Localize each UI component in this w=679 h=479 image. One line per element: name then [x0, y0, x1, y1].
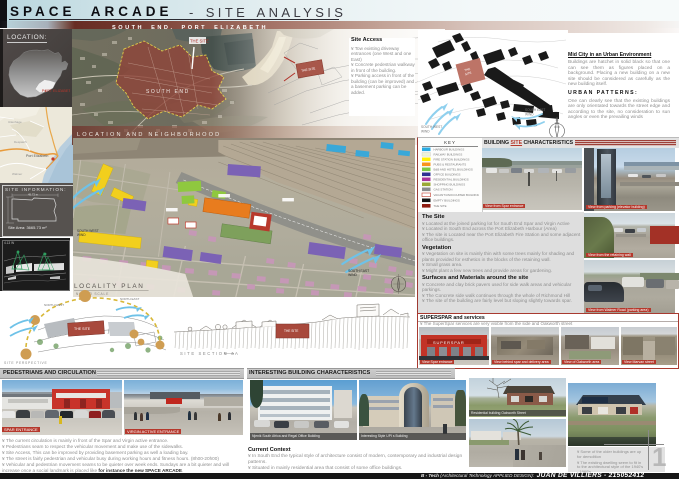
- svg-text:A: A: [235, 351, 238, 356]
- svg-text:WIND: WIND: [525, 113, 534, 117]
- svg-text:B&B AND HOTEL BUILDINGS: B&B AND HOTEL BUILDINGS: [434, 168, 473, 172]
- svg-text:THE SITE: THE SITE: [74, 327, 91, 331]
- svg-text:PUBS & RESTAURANTS: PUBS & RESTAURANTS: [434, 163, 467, 167]
- svg-text:RAILWAY BUILDINGS: RAILWAY BUILDINGS: [434, 153, 463, 157]
- svg-text:WIND: WIND: [348, 273, 357, 277]
- svg-text:SOUTH EAST: SOUTH EAST: [525, 108, 545, 112]
- svg-text:WIND: WIND: [421, 130, 430, 134]
- svg-text:SOUTH END: SOUTH END: [146, 89, 190, 95]
- svg-text:LOCALITY PLAN: LOCALITY PLAN: [74, 283, 145, 290]
- svg-text:SOUTH WEST: SOUTH WEST: [421, 125, 442, 129]
- svg-text:THE SITE: THE SITE: [284, 329, 298, 333]
- svg-text:Walmer: Walmer: [12, 172, 22, 176]
- svg-text:THE SITE: THE SITE: [190, 39, 209, 44]
- svg-text:OFFICE BUILDINGS: OFFICE BUILDINGS: [434, 173, 461, 177]
- svg-text:FIRE STATION BUILDINGS: FIRE STATION BUILDINGS: [434, 158, 470, 162]
- svg-text:THE SITE: THE SITE: [434, 204, 447, 208]
- svg-text:RESIDENTIAL BUILDINGS: RESIDENTIAL BUILDINGS: [434, 178, 469, 182]
- svg-text:WIND: WIND: [77, 233, 86, 237]
- svg-text:Port Elizabeth: Port Elizabeth: [26, 154, 48, 158]
- svg-text:PORT ELIZABETH: PORT ELIZABETH: [42, 89, 70, 93]
- svg-text:HARBOUR BUILDINGS: HARBOUR BUILDINGS: [434, 148, 465, 152]
- svg-text:VACANT/UNOCCUPIED BUILDINGS: VACANT/UNOCCUPIED BUILDINGS: [434, 193, 480, 197]
- svg-text:GAS STATION: GAS STATION: [434, 188, 453, 192]
- svg-text:Site Area: 3665.73 m²: Site Area: 3665.73 m²: [8, 225, 47, 230]
- svg-text:45.72 m: 45.72 m: [28, 193, 39, 197]
- svg-text:EMPTY BUILDINGS: EMPTY BUILDINGS: [434, 199, 460, 203]
- svg-text:NORTH WEST: NORTH WEST: [44, 303, 64, 307]
- svg-text:Despatch: Despatch: [14, 140, 27, 144]
- svg-text:SHOPPING BUILDINGS: SHOPPING BUILDINGS: [434, 183, 466, 187]
- svg-text:Uitenhage: Uitenhage: [8, 120, 22, 124]
- svg-text:NORTH EAST: NORTH EAST: [120, 297, 139, 301]
